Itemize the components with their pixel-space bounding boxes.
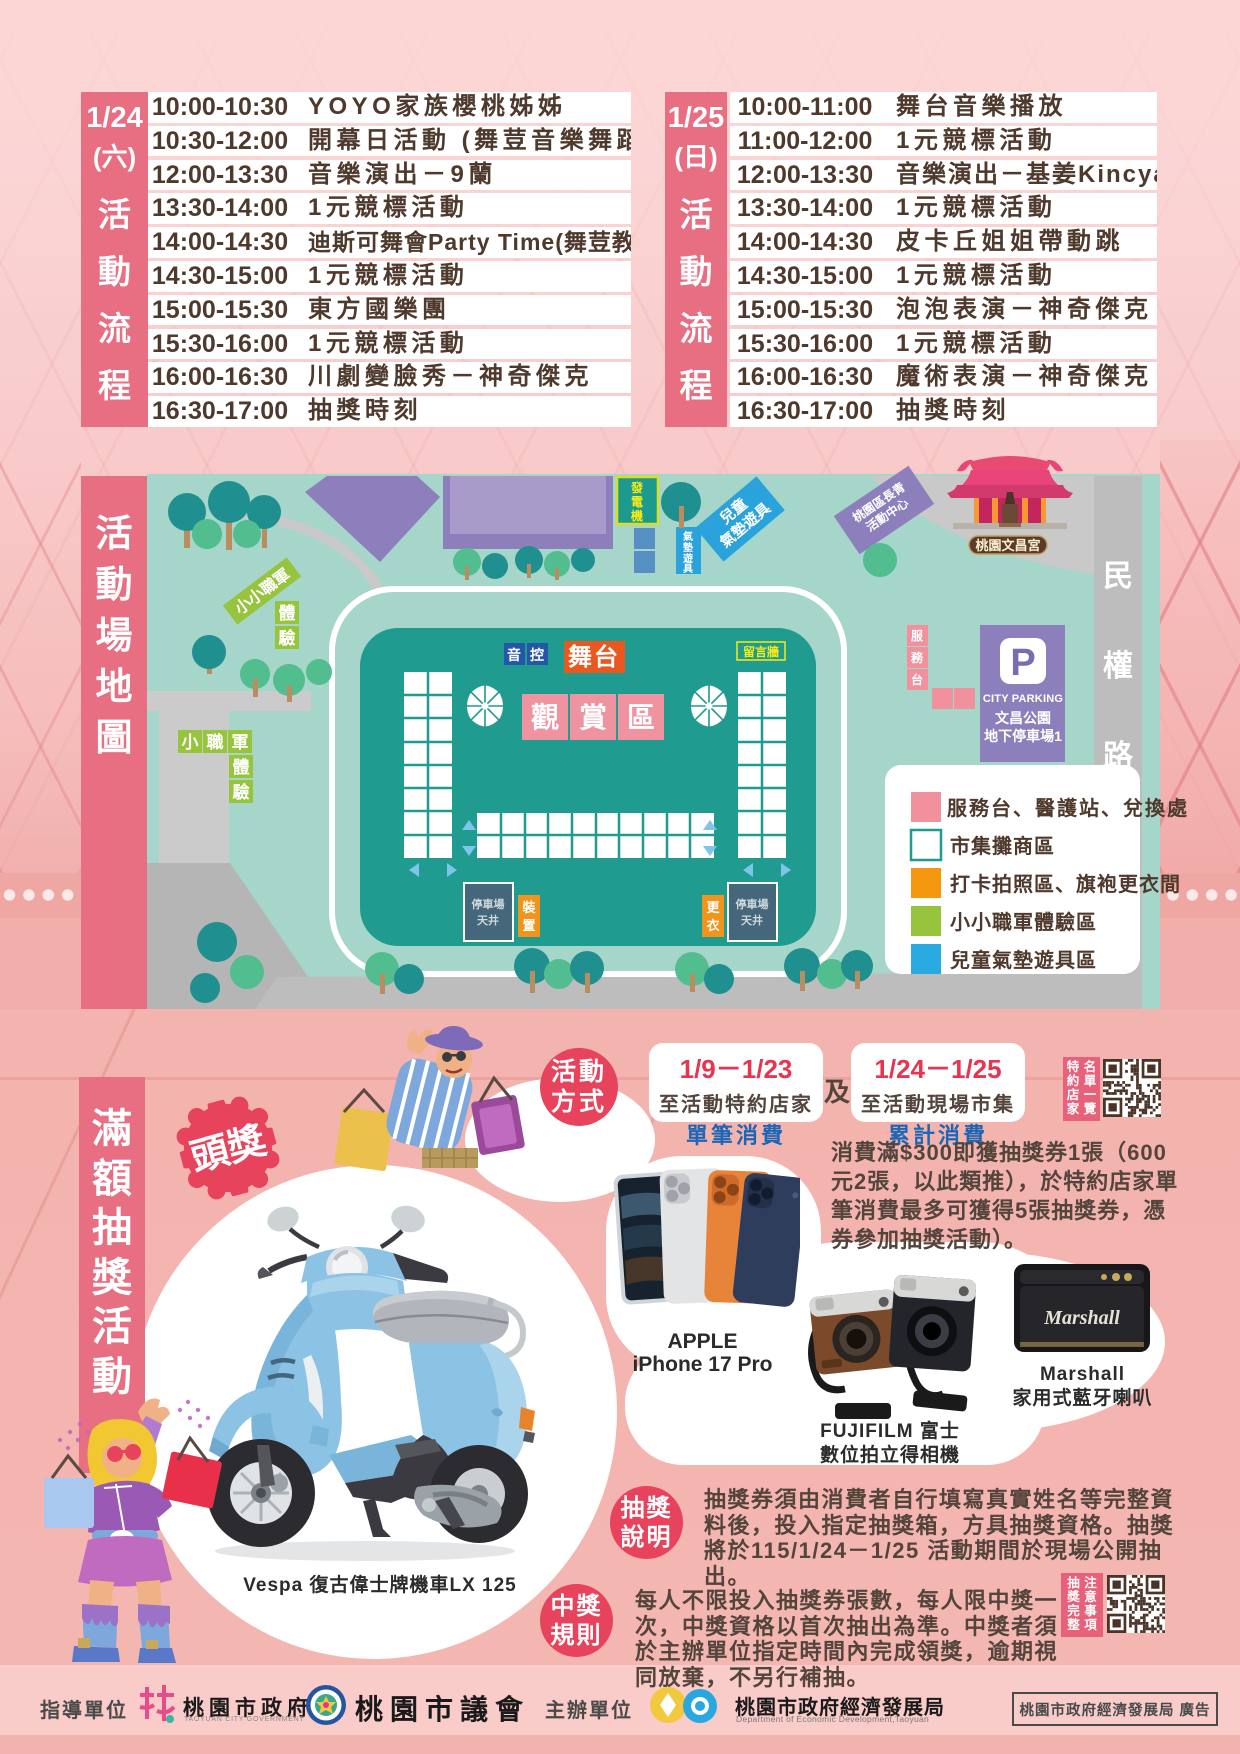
svg-text:打卡拍照區、旗袍更衣間: 打卡拍照區、旗袍更衣間 (950, 872, 1181, 896)
svg-text:Marshall: Marshall (1043, 1307, 1120, 1329)
svg-text:權: 權 (1103, 650, 1133, 683)
svg-text:更: 更 (706, 900, 720, 915)
svg-text:停車場: 停車場 (736, 897, 769, 911)
svg-text:賞: 賞 (579, 702, 607, 733)
svg-text:服: 服 (911, 628, 924, 643)
svg-text:觀: 觀 (531, 702, 559, 733)
svg-text:具: 具 (682, 563, 693, 575)
svg-text:舞台: 舞台 (568, 643, 620, 671)
svg-text:職: 職 (207, 732, 224, 752)
svg-text:小: 小 (182, 733, 199, 752)
svg-text:民: 民 (1103, 560, 1133, 593)
svg-text:文昌公園: 文昌公園 (995, 710, 1051, 726)
svg-text:軍: 軍 (232, 733, 249, 752)
svg-text:兒童氣墊遊具區: 兒童氣墊遊具區 (950, 948, 1097, 972)
svg-text:CITY PARKING: CITY PARKING (983, 693, 1063, 705)
svg-text:驗: 驗 (279, 628, 296, 648)
svg-text:置: 置 (522, 918, 535, 933)
svg-text:天井: 天井 (741, 913, 763, 927)
svg-text:音: 音 (507, 647, 521, 663)
svg-text:裝: 裝 (521, 900, 536, 915)
svg-text:區: 區 (627, 702, 655, 733)
svg-text:市集攤商區: 市集攤商區 (950, 834, 1055, 858)
svg-text:墊: 墊 (683, 541, 693, 554)
svg-text:控: 控 (530, 647, 544, 663)
svg-text:小小職軍體驗區: 小小職軍體驗區 (950, 910, 1097, 934)
svg-text:天井: 天井 (477, 913, 499, 927)
svg-text:氣: 氣 (683, 530, 693, 543)
svg-text:機: 機 (631, 508, 643, 523)
svg-text:台: 台 (911, 672, 923, 687)
svg-text:電: 電 (631, 495, 643, 509)
svg-text:體: 體 (279, 604, 296, 623)
svg-text:服務台、醫護站、兌換處: 服務台、醫護站、兌換處 (947, 796, 1189, 820)
svg-text:P: P (1010, 642, 1035, 684)
svg-text:驗: 驗 (233, 782, 250, 802)
svg-text:發: 發 (630, 480, 644, 495)
svg-text:衣: 衣 (706, 918, 719, 933)
svg-text:務: 務 (911, 650, 924, 665)
svg-text:停車場: 停車場 (472, 897, 505, 911)
svg-text:地下停車場1: 地下停車場1 (984, 728, 1062, 744)
svg-text:留言牆: 留言牆 (743, 644, 779, 659)
svg-text:桃園文昌宮: 桃園文昌宮 (975, 538, 1040, 553)
svg-text:體: 體 (233, 758, 250, 777)
